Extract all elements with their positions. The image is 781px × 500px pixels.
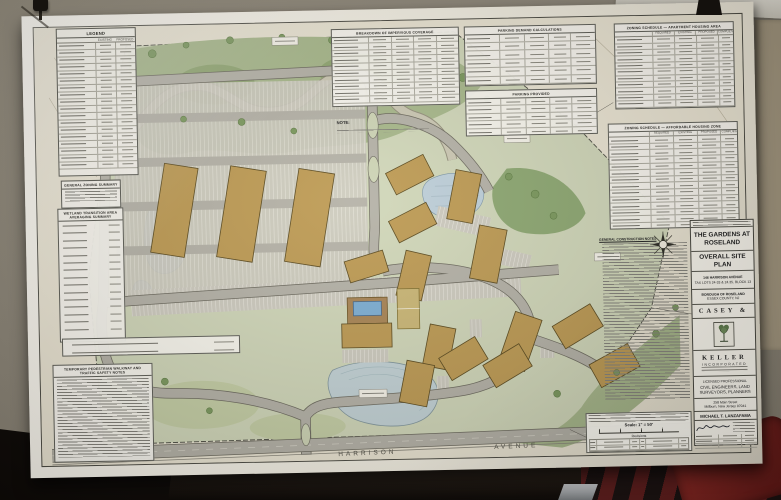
greek-cell — [390, 36, 413, 42]
municipality-line2: ESSEX COUNTY, NJ — [707, 296, 739, 301]
greek-cell — [570, 33, 595, 41]
general-zoning-summary-text — [62, 188, 120, 203]
greek-cell — [368, 50, 391, 56]
greek-row — [466, 75, 596, 86]
greek-cell — [596, 439, 629, 444]
greek-cell — [572, 119, 597, 126]
greek-cell — [466, 106, 500, 113]
greek-cell — [653, 62, 675, 68]
greek-cell — [616, 95, 653, 101]
greek-cell — [524, 50, 549, 58]
greek-cell — [609, 144, 649, 150]
greek-cell — [550, 105, 572, 112]
sheet-title: OVERALL SITE PLAN — [691, 251, 753, 272]
greek-cell — [675, 81, 697, 87]
binder-clip-body — [696, 0, 722, 15]
firm-name-keller-block: KELLER INCORPORATED — [693, 350, 756, 377]
greek-cell — [117, 126, 137, 132]
legend-col-proposed: PROPOSED — [115, 37, 135, 41]
greek-cell — [718, 439, 741, 443]
greek-cell — [615, 63, 652, 69]
greek-cell — [59, 119, 97, 126]
greek-cell — [650, 183, 674, 189]
greek-cell — [674, 62, 696, 68]
greek-cell — [721, 168, 738, 174]
greek-cell — [609, 150, 649, 156]
greek-cell — [610, 170, 650, 176]
greek-cell — [116, 84, 136, 90]
greek-cell — [524, 67, 549, 75]
legend-col-existing: EXISTING — [95, 37, 115, 41]
greek-cell — [391, 69, 414, 75]
parking-provided-rows — [466, 97, 597, 137]
greek-cell — [413, 36, 436, 42]
greek-cell — [392, 96, 415, 102]
greek-cell — [651, 222, 675, 228]
greek-cell — [525, 113, 550, 120]
greek-cell — [117, 133, 137, 139]
greek-cell — [116, 70, 136, 76]
greek-cell — [697, 155, 721, 161]
greek-cell — [97, 161, 117, 167]
greek-cell — [63, 325, 99, 333]
greek-cell — [116, 98, 136, 104]
greek-cell — [501, 106, 526, 113]
greek-cell — [115, 63, 135, 69]
zoning-col-existing: EXISTING — [673, 31, 695, 36]
greek-cell — [653, 56, 675, 62]
greek-cell — [571, 66, 596, 74]
greek-cell — [697, 149, 721, 155]
greek-cell — [59, 161, 97, 168]
greek-cell — [549, 67, 571, 75]
greek-cell — [719, 99, 734, 105]
greek-cell — [96, 84, 116, 90]
greek-cell — [57, 42, 95, 49]
greek-cell — [436, 49, 459, 55]
greek-cell — [58, 70, 96, 77]
greek-cell — [611, 223, 651, 229]
greek-cell — [116, 91, 136, 97]
greek-cell — [695, 444, 718, 448]
greek-cell — [718, 443, 741, 447]
signature-block — [695, 420, 758, 449]
greek-cell — [391, 63, 414, 69]
greek-cell — [572, 104, 597, 111]
greek-cell — [465, 60, 499, 68]
greek-cell — [436, 81, 459, 87]
greek-cell — [652, 49, 674, 55]
greek-cell — [391, 89, 414, 95]
greek-cell — [651, 209, 675, 215]
firm-address-line2: Millburn, New Jersey 07041 — [704, 404, 746, 409]
greek-cell — [57, 49, 95, 56]
greek-cell — [653, 81, 675, 87]
project-address: 146 HARRISON AVENUE TAX LOTS 24-33 & 24.… — [692, 271, 754, 290]
greek-cell — [652, 43, 674, 49]
greek-cell — [97, 147, 117, 153]
greek-cell — [610, 203, 650, 209]
greek-cell — [436, 62, 459, 68]
greek-cell — [722, 201, 739, 207]
binder-clip-icon — [694, 0, 724, 18]
zoning-col-complies: COMPLIES — [717, 30, 733, 35]
title-block-mini-table — [695, 434, 757, 449]
greek-cell — [721, 175, 738, 181]
greek-cell — [610, 163, 650, 169]
greek-cell — [549, 50, 571, 58]
photo-of-site-plan: HARRISON AVENUE LEGEND EXISTING PROPOSED… — [0, 0, 781, 500]
greek-cell — [718, 61, 733, 67]
greek-cell — [437, 95, 460, 101]
greek-cell — [673, 143, 697, 149]
graphic-scale-bar — [599, 427, 679, 433]
site-plan-sheet: HARRISON AVENUE LEGEND EXISTING PROPOSED… — [21, 2, 762, 479]
license-info-greek — [733, 422, 755, 432]
legend-header-spacer — [57, 37, 95, 42]
municipality: BOROUGH OF ROSELAND ESSEX COUNTY, NJ — [692, 289, 754, 305]
construction-notes: GENERAL CONSTRUCTION NOTES — [599, 236, 690, 410]
greek-cell — [651, 216, 675, 222]
pushpin-stem — [39, 10, 42, 20]
greek-cell — [571, 75, 596, 83]
greek-cell — [650, 176, 674, 182]
zoning-aff-col-existing: EXISTING — [673, 131, 697, 136]
greek-cell — [616, 88, 653, 94]
greek-cell — [59, 147, 97, 154]
greek-cell — [96, 70, 116, 76]
walkway-notes-text — [54, 376, 154, 460]
greek-cell — [500, 68, 525, 76]
greek-cell — [721, 155, 738, 161]
title-block: THE GARDENS AT ROSELAND OVERALL SITE PLA… — [690, 219, 759, 446]
greek-cell — [674, 209, 698, 215]
greek-cell — [610, 190, 650, 196]
greek-cell — [413, 49, 436, 55]
greek-cell — [616, 82, 653, 88]
greek-cell — [572, 127, 597, 134]
greek-cell — [741, 443, 757, 447]
greek-cell — [58, 77, 96, 84]
greek-cell — [500, 51, 525, 59]
greek-cell — [616, 101, 653, 107]
greek-cell — [697, 175, 721, 181]
greek-cell — [368, 43, 391, 49]
greek-cell — [57, 63, 95, 70]
greek-cell — [674, 176, 698, 182]
greek-cell — [673, 156, 697, 162]
greek-cell — [616, 75, 653, 81]
greek-cell — [651, 203, 675, 209]
greek-cell — [653, 100, 675, 106]
greek-cell — [414, 95, 437, 101]
greek-cell — [333, 70, 369, 76]
greek-cell — [96, 77, 116, 83]
greek-cell — [596, 445, 629, 450]
greek-cell — [117, 119, 137, 125]
greek-cell — [115, 42, 135, 48]
wetland-totals-rows — [63, 336, 239, 357]
greek-cell — [466, 98, 500, 105]
greek-cell — [653, 75, 675, 81]
legend-items — [57, 42, 138, 170]
greek-cell — [333, 83, 369, 89]
greek-cell — [116, 112, 136, 118]
greek-cell — [697, 87, 719, 93]
greek-cell — [59, 126, 97, 133]
greek-cell — [391, 76, 414, 82]
greek-cell — [391, 82, 414, 88]
greek-cell — [369, 70, 392, 76]
greek-row — [590, 444, 688, 451]
greek-cell — [99, 325, 123, 333]
greek-row — [63, 325, 123, 334]
greek-cell — [391, 43, 414, 49]
greek-cell — [696, 68, 718, 74]
greek-cell — [698, 202, 722, 208]
greek-cell — [571, 58, 596, 66]
greek-cell — [194, 345, 237, 354]
greek-cell — [97, 133, 117, 139]
zoning-affordable-rows — [609, 135, 739, 229]
greek-cell — [465, 35, 499, 43]
greek-row — [333, 95, 459, 104]
greek-cell — [698, 188, 722, 194]
greek-cell — [721, 149, 738, 155]
greek-cell — [674, 169, 698, 175]
greek-cell — [96, 112, 116, 118]
greek-cell — [652, 37, 674, 43]
greek-cell — [525, 105, 550, 112]
greek-cell — [653, 69, 675, 75]
greek-cell — [698, 182, 722, 188]
greek-cell — [698, 195, 722, 201]
greek-cell — [675, 100, 697, 106]
greek-cell — [697, 136, 721, 142]
greek-cell — [95, 42, 115, 48]
greek-cell — [718, 74, 733, 80]
greek-cell — [650, 150, 674, 156]
greek-cell — [59, 154, 97, 161]
greek-cell — [500, 59, 525, 67]
chair-metal-part — [558, 484, 598, 500]
greek-row — [59, 161, 137, 170]
greek-cell — [696, 42, 718, 48]
greek-cell — [117, 147, 137, 153]
greek-cell — [499, 34, 524, 42]
greek-cell — [718, 48, 733, 54]
address-line2: TAX LOTS 24-33 & 24.35, BLOCK 13 — [695, 279, 752, 284]
greek-cell — [650, 163, 674, 169]
greek-cell — [550, 127, 572, 134]
greek-cell — [609, 137, 649, 143]
greek-cell — [501, 98, 526, 105]
greek-cell — [524, 34, 549, 42]
firm-tagline-greek — [701, 366, 747, 372]
greek-cell — [611, 216, 651, 222]
greek-cell — [719, 87, 734, 93]
walkway-notes-panel: TEMPORARY PEDESTRIAN WALKWAY AND TRAFFIC… — [52, 363, 154, 463]
greek-cell — [697, 80, 719, 86]
greek-cell — [721, 162, 738, 168]
general-zoning-summary-panel: GENERAL ZONING SUMMARY — [61, 179, 122, 208]
zoning-col-spacer2 — [609, 132, 649, 137]
greek-cell — [97, 126, 117, 132]
greek-cell — [718, 434, 741, 438]
greek-cell — [721, 181, 738, 187]
greek-cell — [97, 119, 117, 125]
greek-cell — [548, 33, 570, 41]
greek-cell — [741, 434, 757, 438]
greek-cell — [467, 129, 501, 136]
greek-cell — [117, 154, 137, 160]
greek-cell — [674, 43, 696, 49]
greek-cell — [332, 64, 368, 70]
greek-cell — [610, 196, 650, 202]
greek-cell — [697, 142, 721, 148]
greek-cell — [718, 35, 733, 41]
firm-address-block: 258 Main Street Millburn, New Jersey 070… — [694, 398, 756, 412]
greek-cell — [414, 82, 437, 88]
firm-logo — [693, 318, 756, 351]
greek-cell — [649, 143, 673, 149]
pushpin-icon — [30, 0, 52, 28]
north-arrow-icon — [648, 229, 679, 260]
engineer-signature — [695, 420, 731, 435]
greek-cell — [466, 68, 500, 76]
greek-cell — [696, 61, 718, 67]
greek-cell — [465, 51, 499, 59]
greek-cell — [525, 75, 550, 83]
greek-cell — [115, 49, 135, 55]
greek-cell — [674, 195, 698, 201]
greek-cell — [653, 94, 675, 100]
greek-cell — [650, 170, 674, 176]
greek-cell — [369, 96, 392, 102]
greek-cell — [332, 37, 368, 43]
impervious-coverage-rows — [332, 35, 459, 103]
greek-cell — [719, 93, 734, 99]
greek-cell — [610, 177, 650, 183]
greek-cell — [610, 183, 650, 189]
greek-cell — [548, 41, 570, 49]
greek-cell — [615, 37, 652, 43]
greek-cell — [499, 42, 524, 50]
greek-cell — [116, 105, 136, 111]
parking-demand-rows — [465, 33, 596, 86]
disciplines: CIVIL ENGINEERS, LAND SURVEYORS, PLANNER… — [696, 383, 754, 394]
greek-cell — [695, 439, 718, 443]
impervious-note-label: NOTE: — [337, 120, 350, 125]
greek-cell — [718, 42, 733, 48]
greek-cell — [721, 188, 738, 194]
greek-cell — [58, 91, 96, 98]
greek-cell — [436, 55, 459, 61]
impervious-coverage-table: BREAKDOWN OF IMPERVIOUS COVERAGE — [331, 27, 461, 108]
greek-cell — [550, 112, 572, 119]
greek-cell — [391, 49, 414, 55]
wetland-averaging-panel: WETLAND TRANSITION AREA AVERAGING SUMMAR… — [57, 207, 126, 342]
greek-cell — [436, 75, 459, 81]
greek-cell — [697, 100, 719, 106]
greek-row — [616, 99, 734, 108]
greek-cell — [674, 55, 696, 61]
greek-cell — [615, 56, 652, 62]
greek-cell — [674, 202, 698, 208]
greek-cell — [721, 142, 738, 148]
greek-cell — [332, 44, 368, 50]
greek-cell — [609, 157, 649, 163]
scale-revisions-block: Scale: 1" = 50' Revisions — [586, 411, 693, 453]
greek-cell — [59, 140, 97, 147]
wetland-averaging-rows — [59, 220, 125, 334]
zoning-table-apartment: ZONING SCHEDULE — APARTMENT HOUSING AREA… — [614, 21, 736, 109]
greek-cell — [58, 112, 96, 119]
greek-cell — [436, 88, 459, 94]
greek-cell — [645, 439, 678, 444]
greek-cell — [741, 438, 757, 442]
greek-cell — [368, 37, 391, 43]
greek-cell — [674, 163, 698, 169]
greek-cell — [391, 56, 414, 62]
greek-cell — [524, 59, 549, 67]
greek-cell — [571, 41, 596, 49]
greek-cell — [697, 74, 719, 80]
greek-cell — [413, 56, 436, 62]
greek-cell — [718, 55, 733, 61]
greek-cell — [697, 169, 721, 175]
greek-cell — [95, 49, 115, 55]
greek-cell — [673, 136, 697, 142]
greek-cell — [332, 57, 368, 63]
greek-cell — [720, 135, 737, 141]
greek-cell — [650, 189, 674, 195]
greek-cell — [58, 105, 96, 112]
zoning-aff-col-complies: COMPLIES — [720, 130, 737, 135]
greek-cell — [650, 196, 674, 202]
zoning-table-affordable: ZONING SCHEDULE — AFFORDABLE HOUSING ZON… — [608, 121, 740, 230]
greek-cell — [435, 35, 458, 41]
greek-cell — [675, 74, 697, 80]
firm-name-casey: CASEY & — [692, 304, 754, 319]
greek-cell — [673, 149, 697, 155]
greek-cell — [501, 121, 526, 128]
pushpin-head — [33, 0, 48, 11]
greek-cell — [369, 89, 392, 95]
greek-cell — [466, 114, 500, 121]
greek-cell — [116, 77, 136, 83]
greek-cell — [653, 88, 675, 94]
firm-disciplines-block: LICENSED PROFESSIONAL CIVIL ENGINEERS, L… — [694, 376, 756, 399]
greek-cell — [414, 75, 437, 81]
greek-cell — [550, 97, 572, 104]
greek-cell — [333, 96, 369, 102]
greek-cell — [571, 49, 596, 57]
greek-cell — [629, 439, 639, 444]
greek-cell — [549, 58, 571, 66]
greek-cell — [436, 68, 459, 74]
wetland-totals-panel — [62, 335, 240, 357]
greek-cell — [97, 140, 117, 146]
greek-cell — [500, 76, 525, 84]
project-name: THE GARDENS AT ROSELAND — [691, 227, 753, 252]
greek-cell — [465, 43, 499, 51]
greek-cell — [645, 444, 678, 449]
legend-panel: LEGEND EXISTING PROPOSED — [56, 27, 139, 177]
greek-cell — [550, 120, 572, 127]
greek-cell — [96, 105, 116, 111]
greek-cell — [501, 113, 526, 120]
